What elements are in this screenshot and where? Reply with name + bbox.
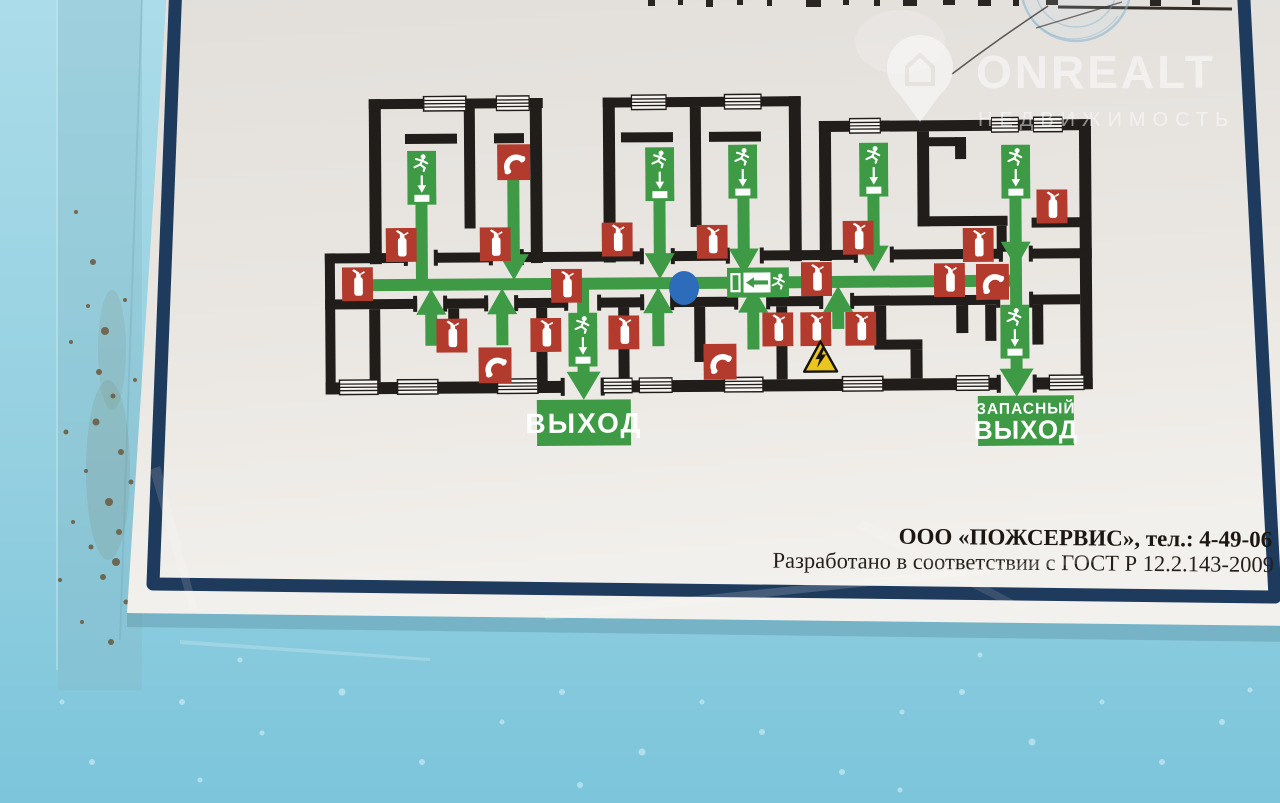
- window-icon: [603, 378, 632, 393]
- watermark-brand-text: ONREALT: [976, 46, 1216, 98]
- fire-extinguisher-icon: [762, 312, 793, 346]
- fire-extinguisher-icon: [963, 228, 994, 262]
- window-icon: [639, 378, 672, 393]
- you-are-here-marker: [669, 271, 699, 305]
- fire-extinguisher-icon: [800, 312, 831, 346]
- exit-route-sign-icon: [859, 143, 888, 197]
- window-icon: [423, 96, 466, 111]
- window-icon: [496, 96, 529, 111]
- fire-extinguisher-icon: [386, 228, 417, 262]
- window-icon: [397, 379, 438, 394]
- main-exit-text: ВЫХОД: [525, 407, 642, 439]
- window-icon: [1049, 375, 1084, 390]
- evacuation-route: [513, 179, 514, 263]
- fire-extinguisher-icon: [1036, 189, 1067, 223]
- emergency-phone-icon: [976, 264, 1009, 300]
- exit-route-sign-icon: [1001, 145, 1030, 199]
- fire-extinguisher-icon: [845, 312, 876, 346]
- exit-route-sign-icon: [568, 313, 597, 367]
- fire-extinguisher-icon: [934, 263, 965, 297]
- fire-extinguisher-icon: [801, 262, 832, 296]
- exit-label-main: ВЫХОД: [525, 399, 642, 446]
- fire-extinguisher-icon: [342, 267, 373, 301]
- exit-label-emergency: ЗАПАСНЫЙ ВЫХОД: [974, 395, 1079, 446]
- exit-route-sign-icon: [645, 147, 674, 201]
- exit-route-sign-icon: [407, 151, 436, 205]
- fire-extinguisher-icon: [551, 269, 582, 303]
- evacuation-route: [421, 203, 422, 285]
- footer-company-text: ООО «ПОЖСЕРВИС», тел.: 4-49-06: [899, 524, 1273, 552]
- fire-extinguisher-icon: [608, 315, 639, 349]
- fire-extinguisher-icon: [602, 222, 633, 256]
- watermark-tagline-text: НЕДВИЖИМОСТЬ: [978, 109, 1235, 131]
- emergency-phone-icon: [703, 344, 736, 380]
- fire-extinguisher-icon: [480, 227, 511, 261]
- fire-extinguisher-icon: [843, 221, 874, 255]
- emergency-phone-icon: [478, 347, 511, 383]
- window-icon: [724, 94, 761, 109]
- photo-of-evacuation-plan: ВЫХОД ЗАПАСНЫЙ ВЫХОД ONREALT НЕДВИЖИМОСТ…: [0, 0, 1280, 803]
- fire-extinguisher-icon: [530, 318, 561, 352]
- footer-standard-text: Разработано в соответствии с ГОСТ Р 12.2…: [772, 548, 1274, 577]
- fire-extinguisher-icon: [697, 225, 728, 259]
- window-icon: [631, 95, 666, 110]
- window-icon: [842, 376, 883, 391]
- evacuation-plan-photo: ВЫХОД ЗАПАСНЫЙ ВЫХОД ONREALT НЕДВИЖИМОСТ…: [0, 0, 1280, 803]
- window-icon: [339, 380, 378, 395]
- exit-direction-sign-icon: [727, 267, 789, 297]
- emergency-phone-icon: [497, 144, 530, 180]
- fire-extinguisher-icon: [436, 319, 467, 353]
- emergency-exit-text-line2: ВЫХОД: [974, 414, 1079, 445]
- window-icon: [956, 376, 989, 391]
- exit-route-sign-icon: [1000, 305, 1029, 359]
- window-icon: [849, 118, 880, 133]
- exit-route-sign-icon: [728, 144, 757, 198]
